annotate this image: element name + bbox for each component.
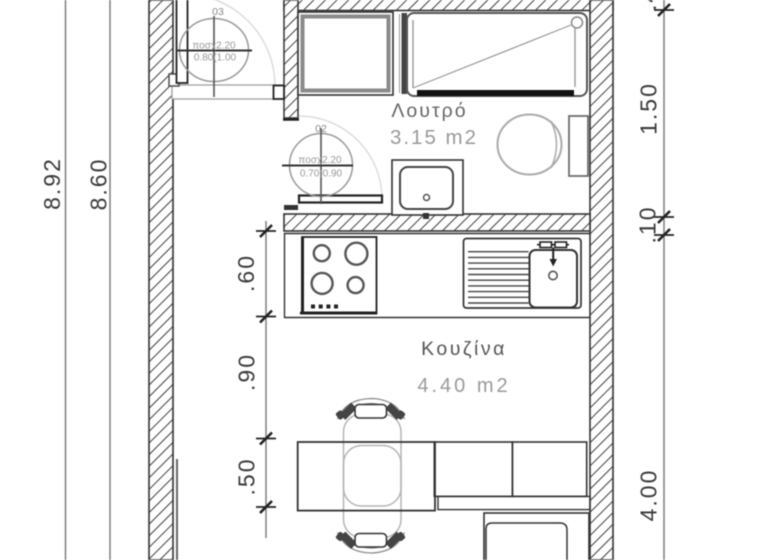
- svg-text:8.92: 8.92: [39, 157, 65, 210]
- svg-text:ποσχ2.20: ποσχ2.20: [192, 41, 236, 52]
- svg-text:0.80(1.00: 0.80(1.00: [194, 53, 237, 64]
- svg-text:.50: .50: [234, 458, 260, 496]
- svg-text:.10: .10: [635, 206, 661, 244]
- svg-text:.90: .90: [234, 353, 260, 391]
- svg-text:1.50: 1.50: [636, 82, 662, 135]
- svg-text:3.15 m2: 3.15 m2: [390, 126, 478, 149]
- svg-text:03: 03: [212, 6, 224, 18]
- svg-text:4.00: 4.00: [636, 469, 662, 522]
- svg-text:.40: .40: [635, 0, 661, 11]
- svg-text:4.40 m2: 4.40 m2: [417, 375, 510, 397]
- svg-text:.60: .60: [233, 254, 259, 292]
- svg-text:Λουτρό: Λουτρό: [391, 100, 467, 122]
- svg-text:Κουζίνα: Κουζίνα: [421, 338, 507, 360]
- svg-text:ποσχ2.20: ποσχ2.20: [298, 155, 342, 166]
- svg-text:8.60: 8.60: [86, 158, 112, 211]
- svg-text:02: 02: [315, 123, 327, 135]
- svg-text:0.70(0.90: 0.70(0.90: [300, 169, 343, 180]
